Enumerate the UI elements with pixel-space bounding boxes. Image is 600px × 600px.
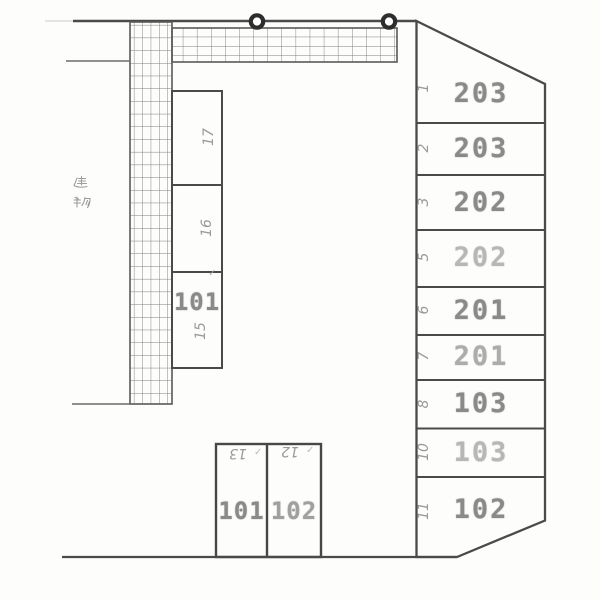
post-marker-icon <box>383 15 395 27</box>
parking-map-scan: 203 203 202 202 201 201 103 103 102 1 2 … <box>0 0 600 600</box>
building-wall-hatch <box>130 22 172 404</box>
stall-number: 8 <box>411 391 437 417</box>
stall-number: 13 <box>222 443 254 463</box>
check-mark: ✓ <box>254 447 262 458</box>
stall-number: 17 <box>196 124 222 150</box>
stall-number: 7 <box>411 343 437 369</box>
check-mark: ✓ <box>208 268 216 279</box>
stall-number: 10 <box>411 439 437 465</box>
stall-number: 1 <box>411 75 437 101</box>
stall-number: 15 <box>188 318 214 344</box>
post-marker-icon <box>251 15 263 27</box>
room-number-stamp: 102 <box>268 496 320 526</box>
stall-number: 6 <box>411 297 437 323</box>
stall-number: 16 <box>194 215 220 241</box>
stall-number: 5 <box>411 244 437 270</box>
stall-number: 2 <box>411 135 437 161</box>
building-kanji-scribble <box>71 175 93 215</box>
canopy-hatch <box>172 28 397 62</box>
room-number-stamp: 101 <box>172 288 222 316</box>
building-label <box>71 175 93 215</box>
check-mark: ✓ <box>306 445 314 456</box>
stall-number: 3 <box>411 189 437 215</box>
room-number-stamp: 101 <box>216 496 267 526</box>
stall-number: 12 <box>274 441 306 461</box>
stall-number: 11 <box>411 498 437 524</box>
